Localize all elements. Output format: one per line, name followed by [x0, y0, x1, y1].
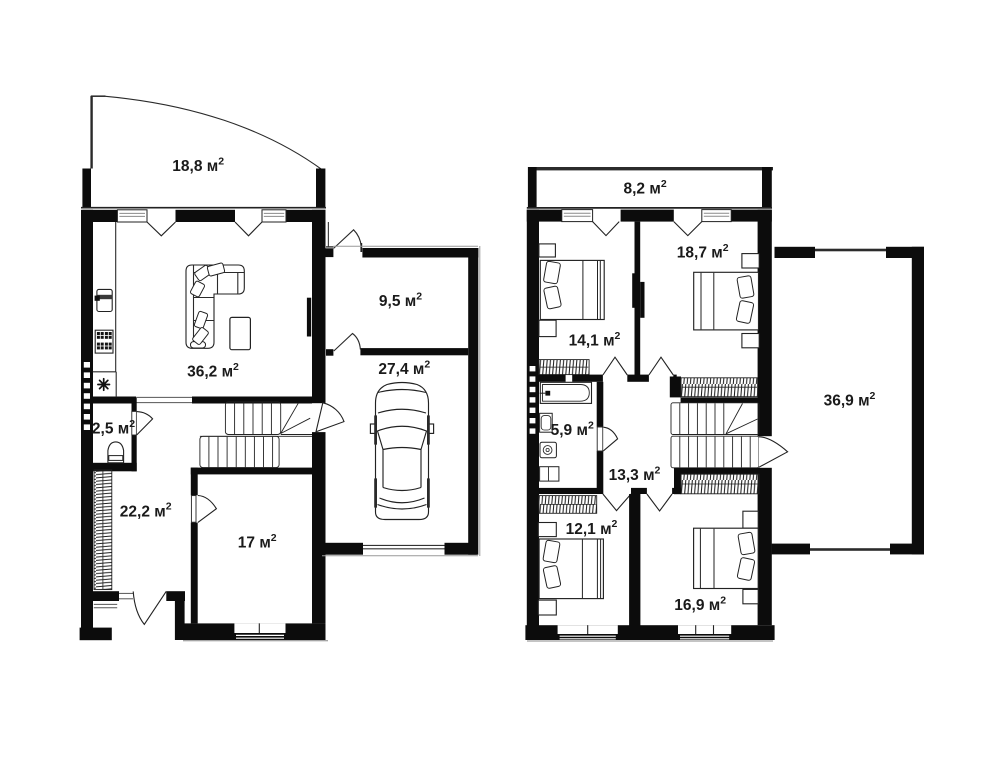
svg-text:2,5 м2: 2,5 м2 [92, 418, 135, 438]
svg-text:36,2 м2: 36,2 м2 [187, 361, 239, 381]
svg-text:12,1 м2: 12,1 м2 [566, 518, 618, 538]
svg-text:9,5 м2: 9,5 м2 [379, 291, 422, 311]
svg-text:22,2 м2: 22,2 м2 [120, 501, 172, 521]
svg-text:27,4 м2: 27,4 м2 [378, 358, 430, 378]
svg-text:14,1 м2: 14,1 м2 [569, 330, 621, 350]
svg-text:18,7 м2: 18,7 м2 [677, 242, 729, 262]
svg-text:16,9 м2: 16,9 м2 [674, 595, 726, 615]
svg-text:13,3 м2: 13,3 м2 [609, 464, 661, 484]
svg-text:8,2 м2: 8,2 м2 [624, 178, 667, 198]
svg-text:36,9 м2: 36,9 м2 [824, 390, 876, 410]
svg-text:5,9 м2: 5,9 м2 [551, 420, 594, 440]
svg-text:18,8 м2: 18,8 м2 [172, 155, 224, 175]
